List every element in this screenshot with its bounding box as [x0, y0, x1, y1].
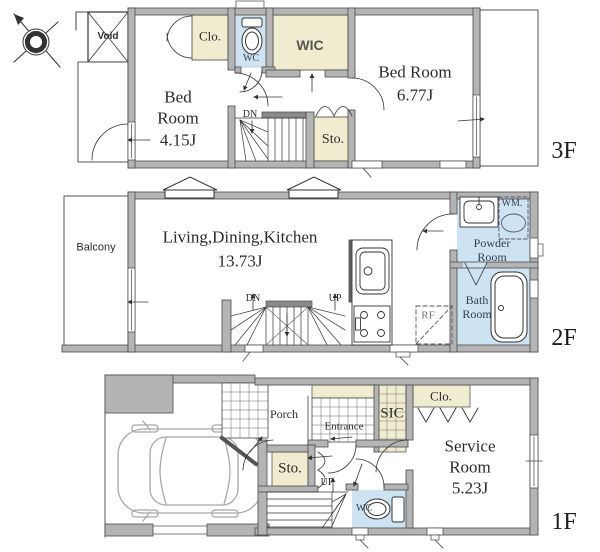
- wic-label: WIC: [296, 38, 323, 52]
- compass-icon: [14, 14, 60, 67]
- bedroom-small-area: 4.15J: [160, 132, 196, 149]
- bathtub-icon: [491, 272, 527, 342]
- stove-icon: [354, 306, 390, 342]
- powder-room-label: Room: [477, 251, 506, 263]
- vanity-sink-icon: [460, 197, 498, 227]
- closet-3f-label: Clo.: [199, 30, 221, 43]
- porch-tiles: [222, 383, 268, 438]
- bedroom-large-area: 6.77J: [397, 87, 433, 104]
- up-2f-label: UP: [329, 294, 342, 304]
- entrance-label: Entrance: [324, 422, 363, 433]
- service-room-label: Room: [449, 459, 491, 476]
- stairs-1f: [267, 492, 348, 528]
- hanger-marks: [418, 408, 478, 422]
- floorplan: Void Clo. WC WIC Bed Room 4.15J Bed Room…: [0, 0, 600, 552]
- balcony-3f-left: [78, 62, 128, 162]
- up-1f-label: UP: [321, 478, 334, 488]
- floor-2f: [62, 177, 543, 365]
- powder-room-label: Powder: [474, 237, 511, 249]
- balcony-3f-right: [480, 10, 538, 166]
- service-room-area: 5.23J: [452, 480, 488, 497]
- sic-label: SIC: [380, 407, 403, 422]
- kitchen-sink-icon: [356, 248, 389, 294]
- stairs-2f: [231, 301, 345, 345]
- bedroom-small-label: Room: [157, 110, 199, 127]
- dn-3f-label: DN: [243, 110, 257, 120]
- storage-1f-label: Sto.: [278, 462, 302, 477]
- bath-room-label: Bath: [466, 294, 489, 306]
- bath-room-label: Room: [462, 308, 491, 320]
- wc-1f-label: WC: [356, 504, 372, 514]
- kitchen-counter: [352, 240, 392, 345]
- balcony-label: Balcony: [76, 243, 115, 254]
- rf-label: RF: [421, 311, 434, 322]
- bedroom-small-label: Bed: [164, 89, 191, 106]
- floor-tag-2f: 2F: [551, 326, 576, 350]
- wm-label: WM.: [502, 199, 523, 209]
- floor-3f: [14, 1, 538, 177]
- bedroom-large-label: Bed Room: [378, 64, 451, 81]
- closet-1f-label: Clo.: [430, 390, 452, 403]
- service-room-label: Service: [445, 438, 496, 455]
- ldk-area: 13.73J: [218, 253, 263, 270]
- storage-3f-label: Sto.: [322, 133, 344, 147]
- toilet-icon-3f: [242, 18, 262, 54]
- entrance-closet: [312, 385, 375, 398]
- arrows-2f: [128, 231, 443, 336]
- ldk-label: Living,Dining,Kitchen: [163, 229, 318, 246]
- dn-2f-label: DN: [246, 294, 260, 304]
- void-label: Void: [98, 32, 119, 42]
- porch-label: Porch: [270, 408, 298, 420]
- floor-tag-3f: 3F: [551, 139, 576, 163]
- balcony-2f: [64, 196, 128, 346]
- wc-3f-label: WC: [243, 54, 259, 64]
- floor-tag-1f: 1F: [551, 510, 576, 534]
